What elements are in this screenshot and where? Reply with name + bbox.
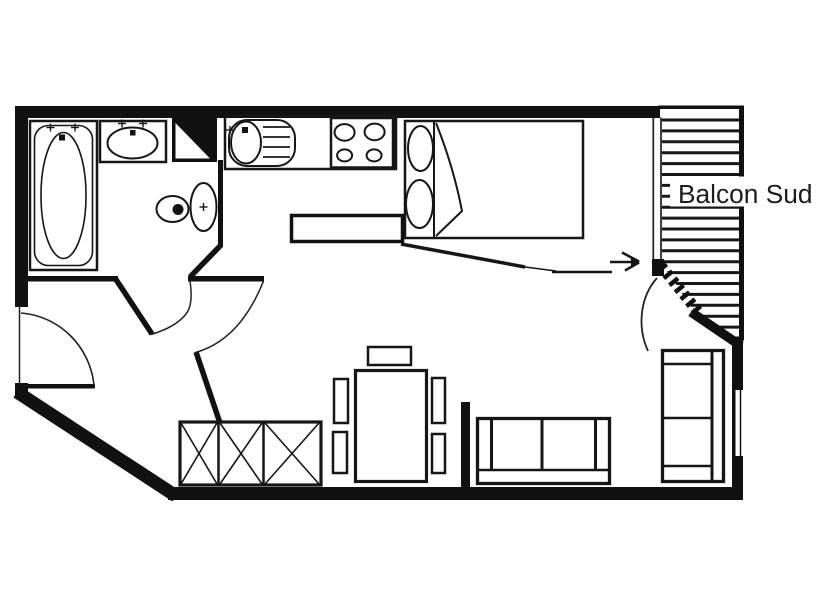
svg-text:Balcon Sud: Balcon Sud bbox=[678, 179, 813, 209]
